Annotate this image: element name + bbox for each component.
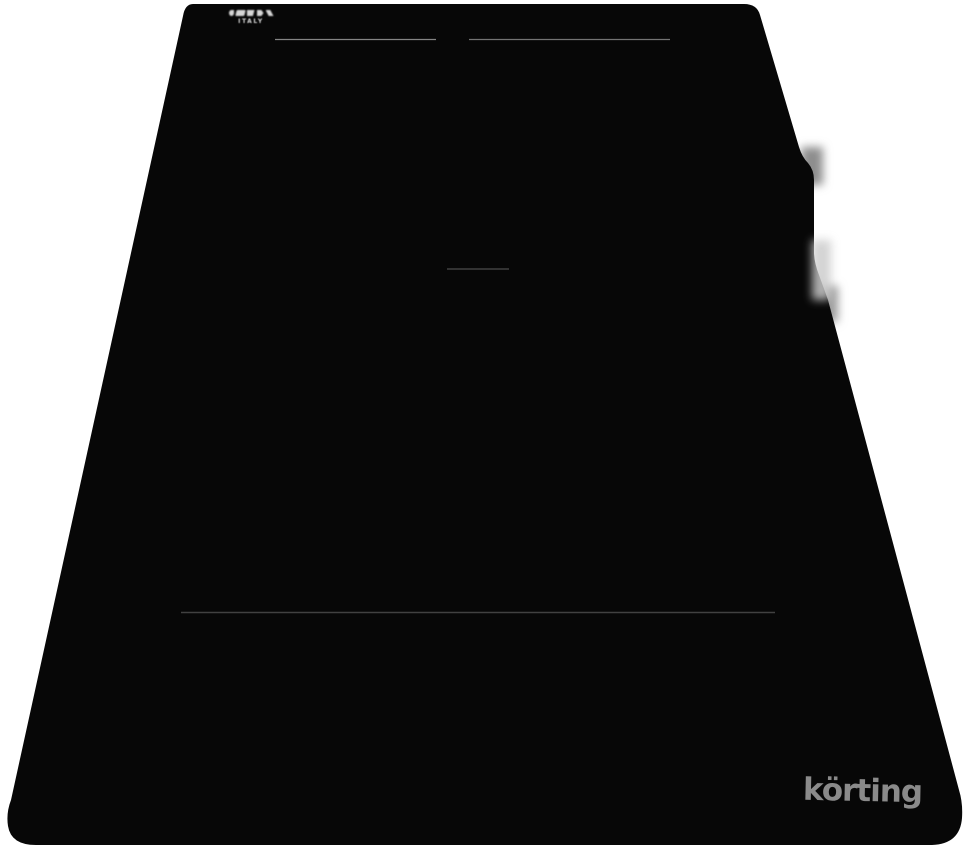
product-photo: ITALY körting — [0, 0, 970, 857]
cooktop-glass — [7, 4, 962, 845]
cooktop-photo — [0, 0, 970, 857]
notch-shadow — [812, 240, 831, 300]
